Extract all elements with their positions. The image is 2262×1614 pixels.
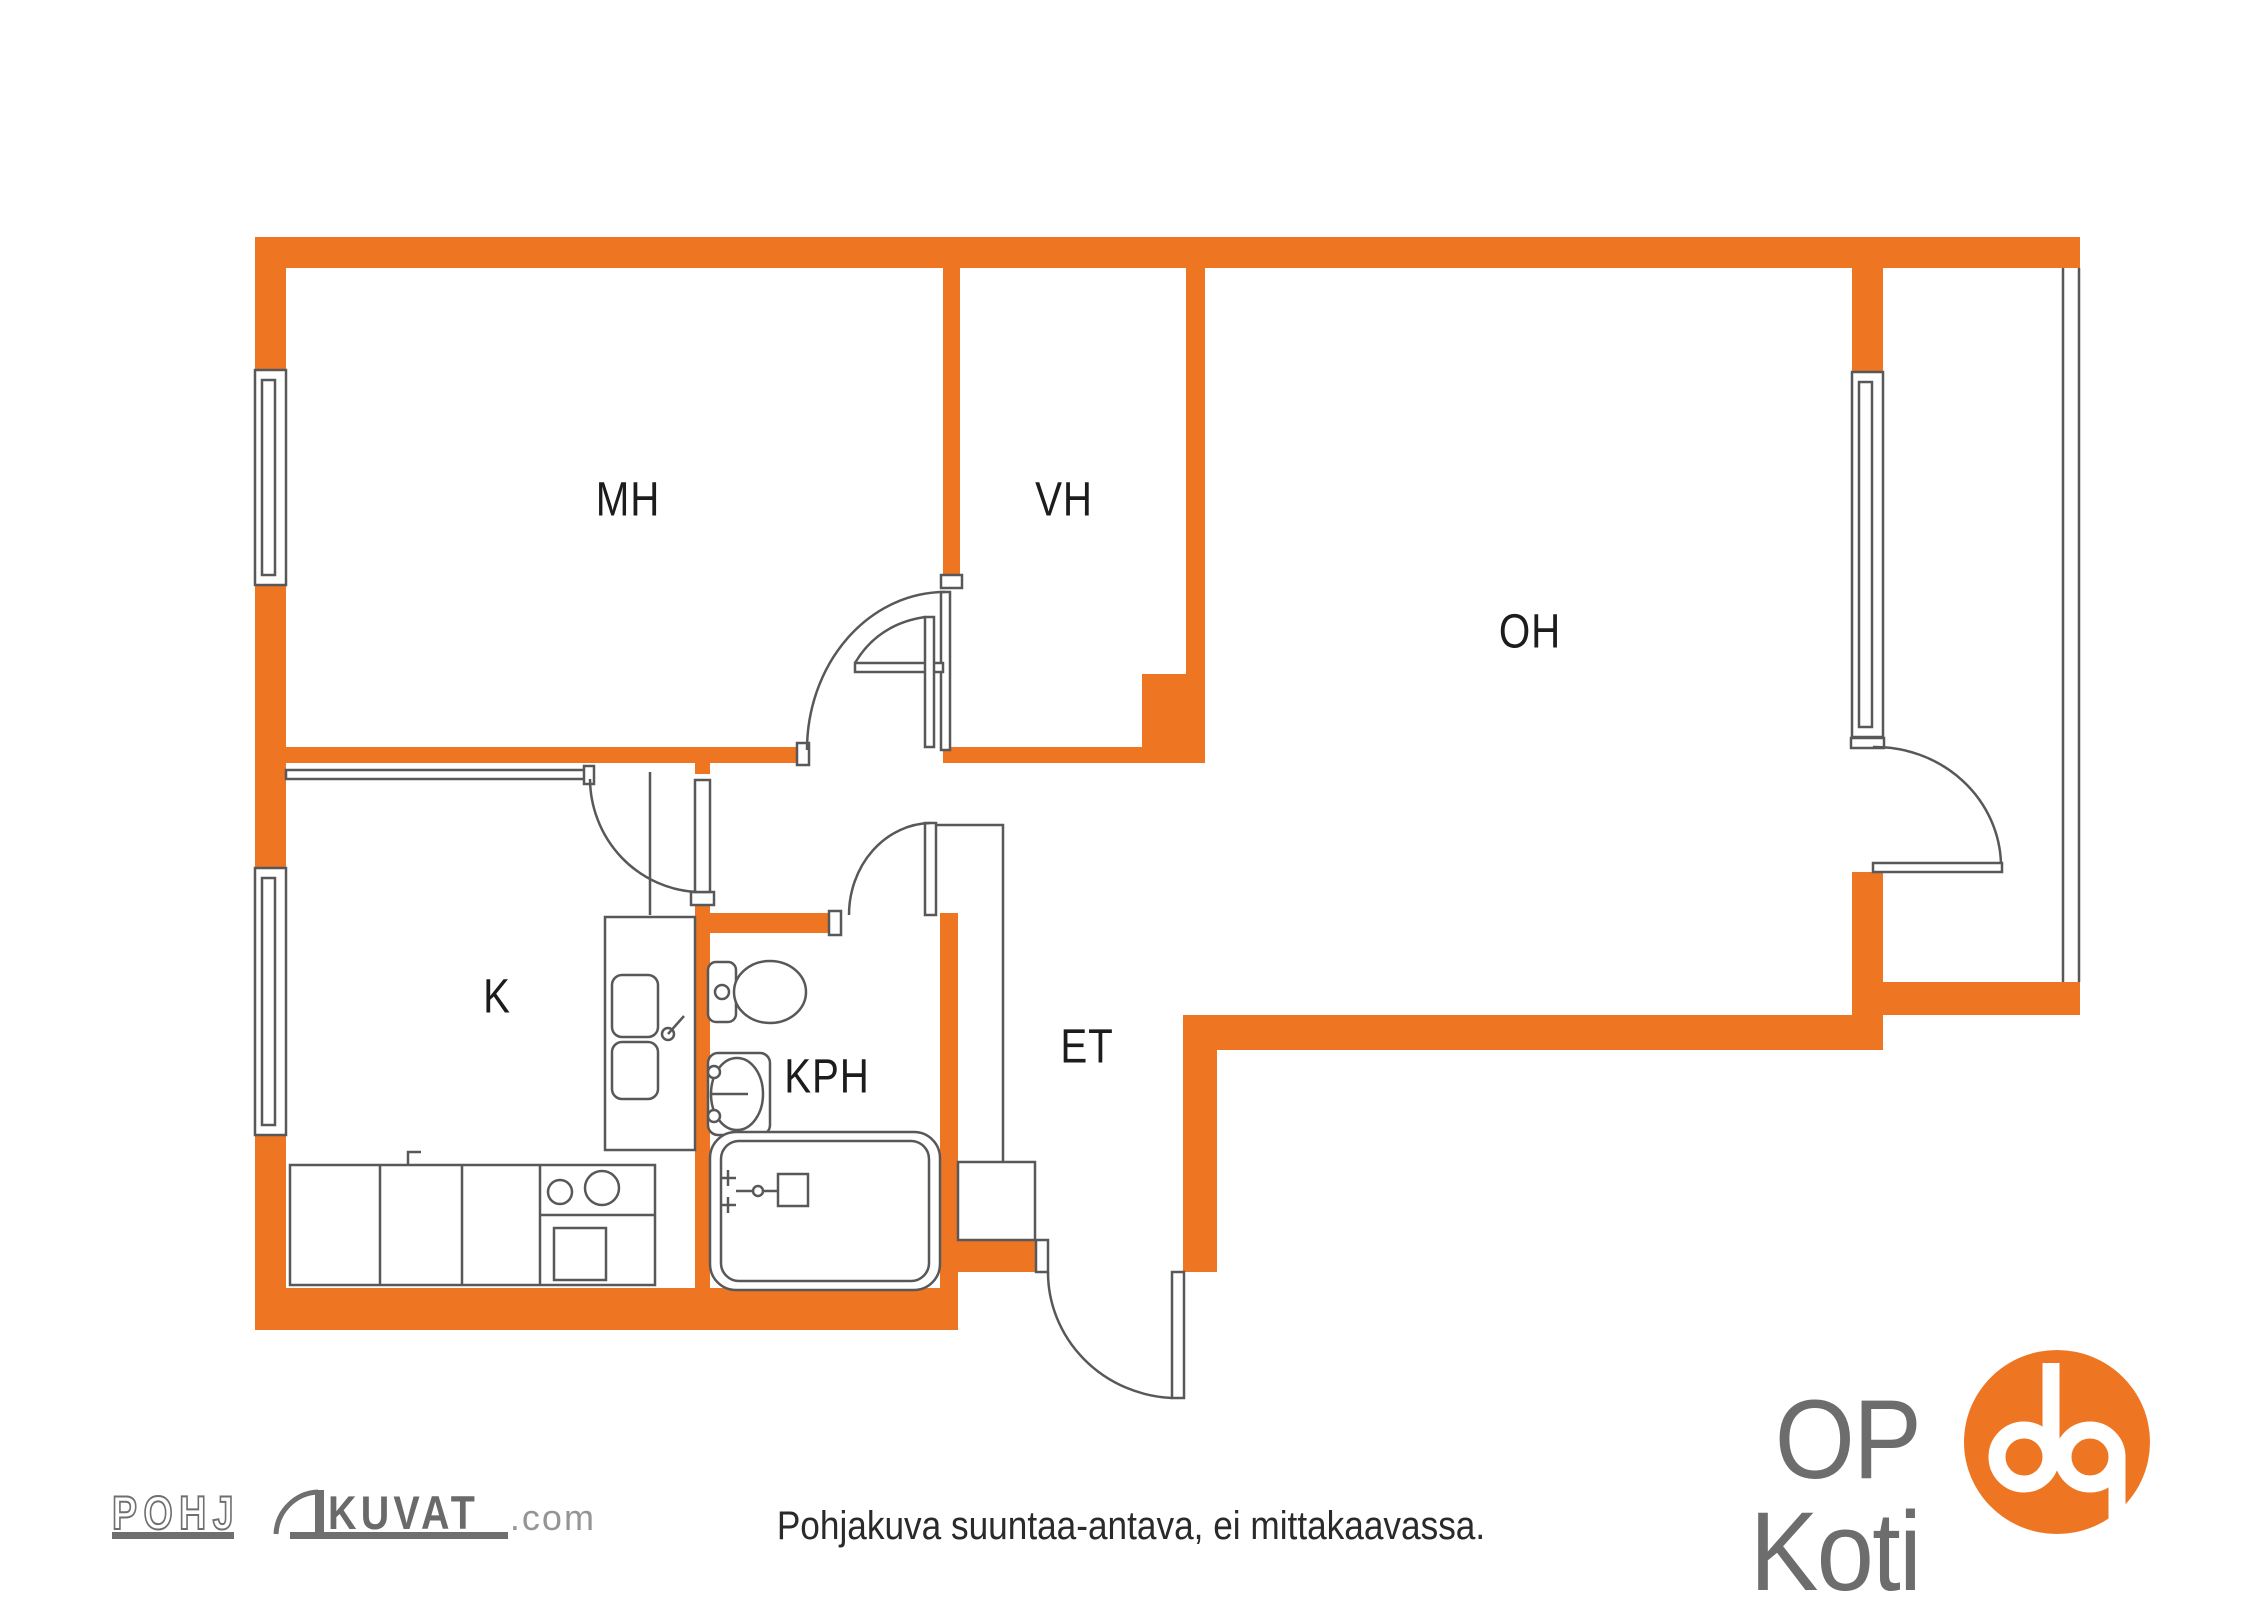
room-label-kph: KPH — [784, 1050, 869, 1105]
wall-mh-vh-divider — [943, 268, 960, 575]
door-arc-icon — [272, 1484, 328, 1536]
floor-plan-page: MH VH OH K KPH ET POHJ KUVAT .com Pohjak… — [0, 0, 2262, 1600]
room-label-oh: OH — [1499, 605, 1561, 660]
bathroom-fixtures — [708, 961, 940, 1290]
pohjakuvat-logo-prefix: POHJ — [112, 1489, 240, 1536]
washbasin — [708, 1053, 770, 1135]
door-kph — [829, 823, 936, 935]
wall-kph-top — [710, 913, 835, 933]
wall-balcony-bottom — [1852, 982, 2080, 1015]
wall-vh-bottom — [943, 747, 1205, 763]
room-label-mh: MH — [596, 473, 660, 528]
wall-k-stub — [695, 762, 710, 774]
pohjakuvat-logo-main: KUVAT — [328, 1489, 479, 1536]
bathtub — [710, 1132, 940, 1290]
op-logo-icon — [1962, 1347, 2152, 1537]
pohjakuvat-logo-suffix: .com — [510, 1500, 596, 1536]
pohjakuvat-logo: POHJ KUVAT .com — [112, 1480, 596, 1536]
floor-plan — [0, 0, 2262, 1600]
window-mh-left — [255, 370, 286, 585]
pohjakuvat-underline-right — [290, 1532, 508, 1539]
oven — [554, 1228, 606, 1280]
kitchen-fixtures — [290, 772, 695, 1285]
toilet — [708, 961, 806, 1023]
wall-mh-bottom — [286, 747, 807, 763]
wall-left-middle — [255, 585, 286, 868]
wall-kph-right — [940, 913, 958, 1288]
door-vh — [855, 617, 943, 747]
tub-fixture — [778, 1174, 808, 1206]
wall-bottom-kitchen — [255, 1288, 958, 1330]
wall-oh-bottom — [1183, 1015, 1883, 1050]
door-arc-vh — [855, 617, 925, 663]
room-label-k: K — [483, 970, 511, 1025]
wall-oh-right-upper — [1852, 268, 1883, 372]
entry-cabinet — [958, 1162, 1035, 1240]
room-label-et: ET — [1060, 1020, 1113, 1075]
wall-oh-right-lower — [1852, 872, 1883, 1015]
room-label-vh: VH — [1035, 473, 1093, 528]
kitchen-sink-counter — [605, 917, 695, 1150]
op-koti-wordmark: OP Koti — [1589, 1384, 1920, 1608]
door-arc-balcony — [1873, 747, 2001, 864]
wall-oh-left — [1186, 268, 1205, 763]
balcony-glazing — [2063, 268, 2079, 982]
wall-top — [255, 237, 2080, 268]
wall-et-right — [1183, 1015, 1217, 1272]
disclaimer-caption: Pohjakuva suuntaa-antava, ei mittakaavas… — [777, 1504, 1485, 1549]
counter-tap-icon — [408, 1152, 421, 1165]
door-balcony — [1851, 738, 2002, 872]
wall-left-upper — [255, 268, 286, 370]
pohjakuvat-underline-left — [112, 1532, 234, 1539]
window-oh-balcony — [1852, 372, 1883, 737]
door-arc-entry — [1048, 1272, 1172, 1398]
window-kitchen-left — [255, 868, 286, 1135]
door-arc-kitchen — [590, 779, 697, 892]
door-arc-kph — [849, 823, 930, 915]
door-entry — [1036, 1240, 1184, 1398]
